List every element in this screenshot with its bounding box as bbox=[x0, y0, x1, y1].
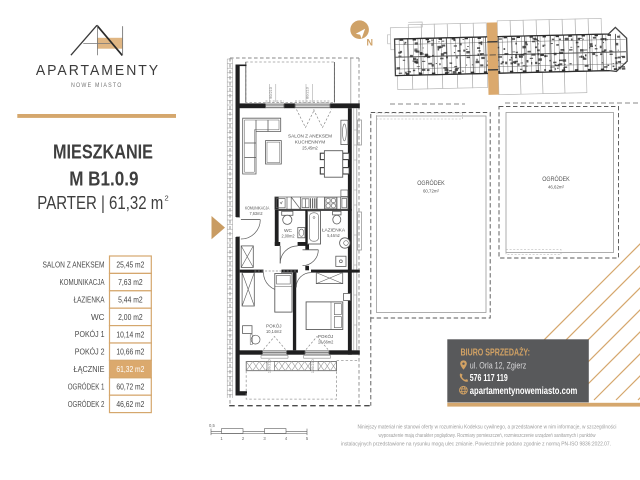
svg-text:OGRÓDEK 1: OGRÓDEK 1 bbox=[68, 382, 105, 391]
svg-text:M B1.0.9: M B1.0.9 bbox=[69, 168, 138, 190]
svg-text:POKÓJ 2: POKÓJ 2 bbox=[75, 348, 105, 357]
svg-text:POKÓJ 1: POKÓJ 1 bbox=[75, 330, 105, 339]
svg-text:POKÓJ: POKÓJ bbox=[266, 322, 282, 328]
svg-text:apartamentynowemiasto.com: apartamentynowemiasto.com bbox=[470, 386, 578, 397]
svg-text:Niniejszy materiał nie stanowi: Niniejszy materiał nie stanowi oferty w … bbox=[358, 424, 617, 430]
svg-text:10,14m2: 10,14m2 bbox=[266, 329, 282, 334]
svg-text:WC: WC bbox=[91, 313, 105, 322]
svg-text:3: 3 bbox=[263, 436, 266, 441]
svg-text:2: 2 bbox=[165, 194, 169, 203]
svg-text:2: 2 bbox=[242, 436, 245, 441]
svg-text:KOMUNIKACJA: KOMUNIKACJA bbox=[60, 278, 106, 287]
svg-text:80/210: 80/210 bbox=[306, 87, 310, 99]
svg-text:10,14 m2: 10,14 m2 bbox=[116, 330, 144, 339]
svg-text:OGRÓDEK: OGRÓDEK bbox=[417, 180, 445, 187]
svg-text:46,62 m2: 46,62 m2 bbox=[116, 400, 144, 409]
svg-text:25,45m2: 25,45m2 bbox=[302, 146, 318, 151]
svg-text:10,66 m2: 10,66 m2 bbox=[116, 348, 144, 357]
svg-text:10,66m2: 10,66m2 bbox=[318, 340, 334, 345]
svg-text:1: 1 bbox=[220, 436, 223, 441]
svg-text:120/210: 120/210 bbox=[311, 359, 315, 373]
svg-text:0,5: 0,5 bbox=[209, 423, 215, 428]
svg-text:120/210: 120/210 bbox=[268, 359, 272, 373]
svg-text:60,72 m2: 60,72 m2 bbox=[116, 383, 144, 392]
svg-text:4: 4 bbox=[285, 436, 288, 441]
svg-text:5,44m2: 5,44m2 bbox=[327, 233, 340, 238]
svg-text:instalacyjnych przedstawione n: instalacyjnych przedstawione na rysunku … bbox=[341, 441, 611, 447]
svg-text:2,00 m2: 2,00 m2 bbox=[118, 313, 143, 322]
svg-text:OGRÓDEK: OGRÓDEK bbox=[542, 176, 570, 183]
svg-text:ul. Orla 12, Zgierz: ul. Orla 12, Zgierz bbox=[470, 360, 527, 370]
svg-text:NOWE MIASTO: NOWE MIASTO bbox=[71, 82, 123, 89]
svg-text:5,44 m2: 5,44 m2 bbox=[118, 296, 143, 305]
svg-text:POKÓJ: POKÓJ bbox=[318, 333, 334, 339]
svg-text:90/210: 90/210 bbox=[269, 87, 273, 99]
svg-text:SALON Z ANEKSEM: SALON Z ANEKSEM bbox=[288, 133, 332, 139]
svg-text:5: 5 bbox=[306, 436, 309, 441]
svg-text:KOMUNIKACJA: KOMUNIKACJA bbox=[245, 205, 270, 210]
svg-text:ŁAZIENKA: ŁAZIENKA bbox=[74, 295, 106, 304]
svg-text:7,63 m2: 7,63 m2 bbox=[118, 278, 143, 287]
svg-text:2,00m2: 2,00m2 bbox=[282, 233, 296, 238]
svg-text:wyposażenie mają charakter pog: wyposażenie mają charakter poglądowy. Ro… bbox=[378, 433, 596, 439]
svg-text:N: N bbox=[367, 38, 374, 48]
svg-text:25,45 m2: 25,45 m2 bbox=[116, 261, 144, 270]
svg-text:7,63m2: 7,63m2 bbox=[250, 211, 264, 216]
svg-text:APARTAMENTY: APARTAMENTY bbox=[36, 63, 160, 79]
svg-text:61,32 m2: 61,32 m2 bbox=[116, 365, 144, 374]
svg-text:MIESZKANIE: MIESZKANIE bbox=[53, 142, 153, 164]
svg-text:OGRÓDEK 2: OGRÓDEK 2 bbox=[68, 400, 105, 409]
svg-text:46,62m²: 46,62m² bbox=[548, 185, 564, 190]
svg-text:60,72m²: 60,72m² bbox=[423, 189, 439, 194]
svg-text:576 117 119: 576 117 119 bbox=[470, 373, 508, 384]
svg-text:KUCHENNYM: KUCHENNYM bbox=[295, 139, 326, 145]
svg-text:ŁĄCZNIE: ŁĄCZNIE bbox=[74, 365, 105, 374]
svg-text:BIURO SPRZEDAŻY:: BIURO SPRZEDAŻY: bbox=[461, 345, 531, 358]
svg-text:PARTER | 61,32 m: PARTER | 61,32 m bbox=[37, 192, 163, 213]
svg-text:SALON Z ANEKSEM: SALON Z ANEKSEM bbox=[43, 261, 105, 270]
svg-text:ŁAZIENKA: ŁAZIENKA bbox=[322, 227, 346, 232]
